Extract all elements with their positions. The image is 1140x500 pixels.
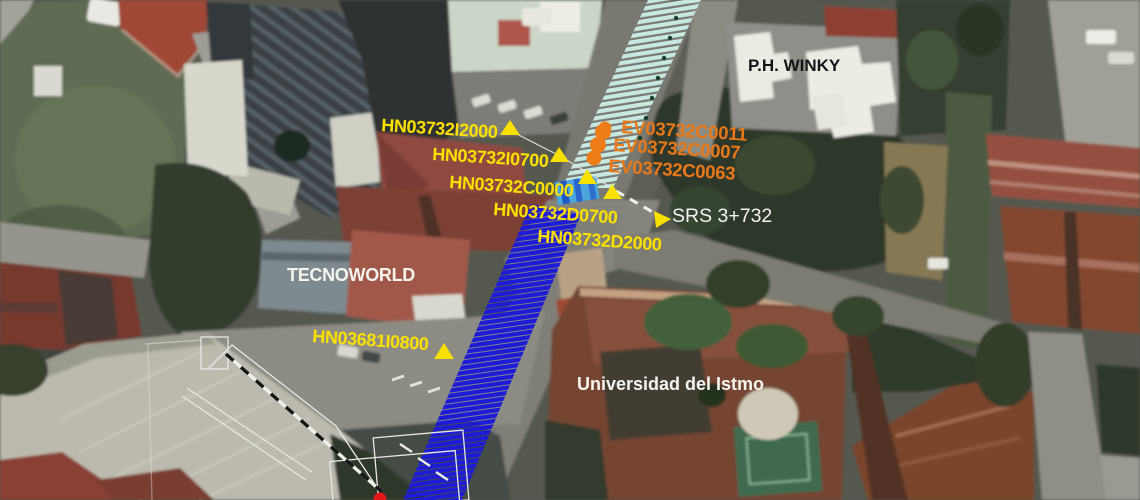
svg-text:Universidad del Istmo: Universidad del Istmo	[577, 374, 764, 394]
svg-text:SRS 3+732: SRS 3+732	[672, 205, 772, 227]
svg-text:P.H. WINKY: P.H. WINKY	[748, 56, 841, 75]
svg-text:TECNOWORLD: TECNOWORLD	[287, 265, 415, 285]
